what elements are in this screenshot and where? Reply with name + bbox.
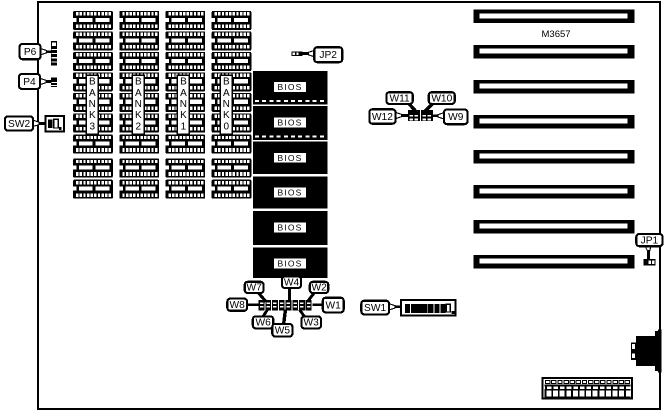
svg-text:1: 1 (181, 122, 187, 133)
svg-text:BIOS: BIOS (277, 259, 302, 269)
svg-text:JP2: JP2 (319, 50, 337, 61)
svg-text:W3: W3 (304, 318, 320, 329)
svg-text:N: N (223, 99, 230, 110)
svg-text:K: K (89, 110, 96, 121)
svg-text:W7: W7 (246, 283, 262, 294)
svg-text:BIOS: BIOS (277, 118, 302, 128)
svg-text:SW2: SW2 (8, 119, 30, 130)
svg-text:K: K (223, 110, 230, 121)
svg-text:A: A (180, 88, 187, 99)
svg-text:0: 0 (224, 122, 230, 133)
svg-text:W5: W5 (275, 326, 291, 337)
svg-text:BIOS: BIOS (277, 82, 302, 92)
svg-text:B: B (135, 77, 142, 88)
svg-text:N: N (180, 99, 187, 110)
svg-text:N: N (135, 99, 142, 110)
svg-text:BIOS: BIOS (277, 188, 302, 198)
svg-text:M3657: M3657 (542, 29, 571, 40)
svg-text:3: 3 (90, 122, 96, 133)
svg-text:W1: W1 (326, 300, 342, 311)
svg-text:A: A (89, 88, 96, 99)
svg-text:BIOS: BIOS (277, 223, 302, 233)
svg-text:B: B (223, 77, 230, 88)
svg-text:P6: P6 (24, 47, 37, 58)
svg-text:W8: W8 (230, 300, 246, 311)
svg-text:A: A (135, 88, 142, 99)
svg-text:A: A (223, 88, 230, 99)
svg-text:JP1: JP1 (641, 235, 659, 246)
svg-text:B: B (89, 77, 96, 88)
svg-text:B: B (180, 77, 187, 88)
svg-text:2: 2 (136, 122, 142, 133)
svg-text:W12: W12 (372, 112, 393, 123)
svg-text:W6: W6 (255, 318, 271, 329)
svg-text:W10: W10 (431, 93, 452, 104)
svg-text:K: K (135, 110, 142, 121)
svg-text:K: K (180, 110, 187, 121)
svg-text:W9: W9 (448, 112, 464, 123)
svg-text:SW1: SW1 (364, 303, 386, 314)
svg-text:BIOS: BIOS (277, 153, 302, 163)
svg-text:N: N (89, 99, 96, 110)
svg-text:P4: P4 (23, 77, 36, 88)
svg-text:W2: W2 (311, 283, 327, 294)
svg-text:W4: W4 (284, 278, 300, 289)
svg-text:W11: W11 (389, 93, 410, 104)
